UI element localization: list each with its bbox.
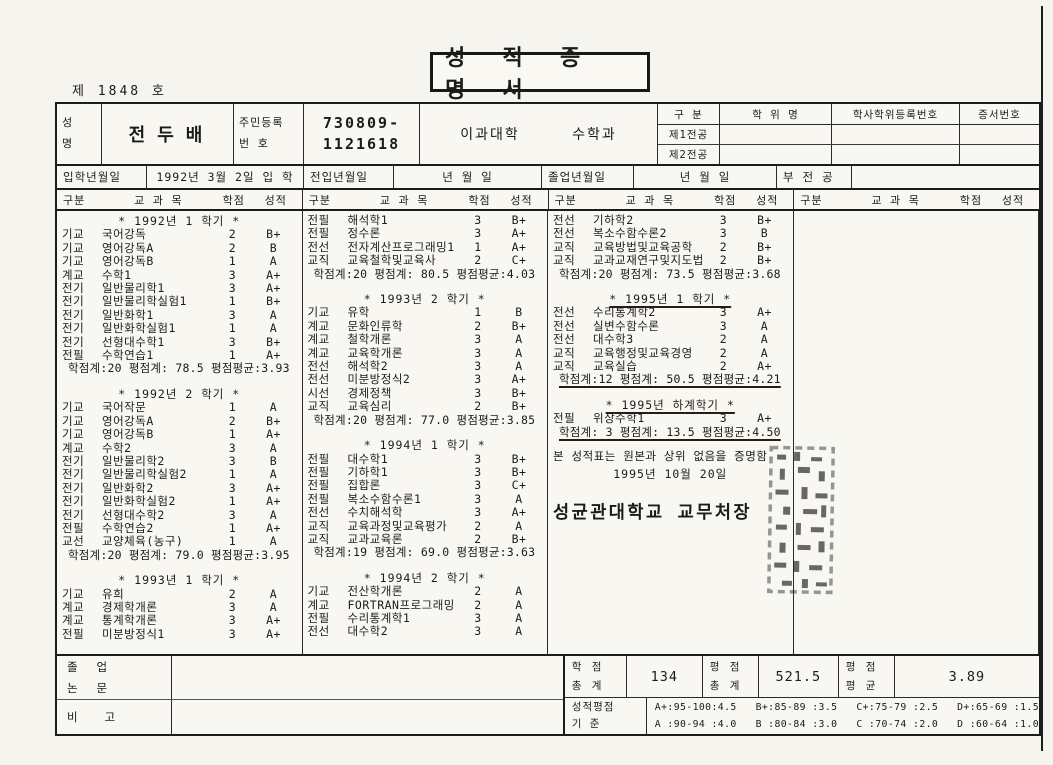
course-name: 대수학1 — [348, 453, 461, 466]
course-grade: A+ — [496, 506, 542, 519]
course-row: 전필해석학13B+ — [308, 214, 543, 227]
course-type: 계교 — [62, 442, 102, 455]
semester-summary: 학점계:20 평점계: 78.5 평점평균:3.93 — [62, 362, 297, 375]
thesis-label: 졸 업 논 문 — [57, 656, 172, 699]
course-row: 교직교육방법및교육공학2B+ — [553, 241, 788, 254]
course-type: 계교 — [62, 269, 102, 282]
course-grade: A — [742, 333, 788, 346]
semester-summary: 학점계:20 평점계: 79.0 평점평균:3.95 — [62, 549, 297, 562]
semester-title: * 1994년 1 학기 * — [308, 439, 543, 452]
course-type: 기교 — [62, 242, 102, 255]
course-row: 기교유희2A — [62, 588, 297, 601]
course-type: 전선 — [308, 506, 348, 519]
course-type: 전필 — [62, 349, 102, 362]
grade-scale-line1: A+:95-100:4.5 B+:85-89 :3.5 C+:75-79 :2.… — [655, 699, 1039, 716]
course-grade: A — [251, 322, 297, 335]
course-type: 전필 — [62, 522, 102, 535]
course-grade: B+ — [496, 466, 542, 479]
header-subject: 교 과 목 — [842, 192, 949, 208]
course-type: 전필 — [308, 466, 348, 479]
course-type: 전필 — [308, 453, 348, 466]
admission-date-value: 1992년 3월 2일 입 학 — [147, 166, 304, 188]
semester-summary: 학점계:20 평점계: 73.5 평점평균:3.68 — [553, 268, 788, 281]
course-name: 교과교육론 — [348, 533, 461, 546]
course-credit: 1 — [215, 401, 251, 414]
scanned-transcript-page: { "page": { "doc_number": "제 1848 호", "t… — [0, 0, 1053, 765]
semester-title-text: * 1993년 1 학기 * — [118, 573, 240, 587]
degree-table: 구 분 학 위 명 학사학위등록번호 증서번호 제1전공 제2전공 — [658, 104, 1039, 164]
course-header-group: 구분 교 과 목 학점 성적 — [794, 190, 1039, 209]
course-row: 전기일반물리학실험11B+ — [62, 295, 297, 308]
course-name: 정수론 — [348, 227, 461, 240]
transcript-column-3: 전선기하학23B+전선복소수함수론23B교직교육방법및교육공학2B+교직교과교재… — [548, 211, 794, 654]
course-name: 영어강독B — [102, 255, 215, 268]
course-credit: 3 — [215, 628, 251, 641]
course-type: 전기 — [62, 482, 102, 495]
semester-title: * 1995년 1 학기 * — [553, 293, 788, 306]
course-name: 교육실습 — [593, 360, 706, 373]
course-grade: B — [251, 242, 297, 255]
degree-col-regno: 학사학위등록번호 — [832, 104, 960, 124]
course-header-group: 구분 교 과 목 학점 성적 — [57, 190, 303, 209]
course-type: 기교 — [62, 588, 102, 601]
course-credit: 3 — [460, 360, 496, 373]
course-grade: A — [251, 535, 297, 548]
gpa-value: 3.89 — [895, 656, 1039, 697]
scan-paper-edge — [1041, 6, 1043, 751]
course-row: 전필대수학13B+ — [308, 453, 543, 466]
course-row: 전기일반물리학13A+ — [62, 282, 297, 295]
header-grade: 성적 — [993, 192, 1033, 208]
course-type: 전기 — [62, 509, 102, 522]
course-credit: 3 — [460, 493, 496, 506]
course-name: 경제학개론 — [102, 601, 215, 614]
course-row: 전기일반화학실험21A+ — [62, 495, 297, 508]
semester-title: * 1993년 2 학기 * — [308, 293, 543, 306]
footer-block: 졸 업 논 문 비 고 학 점 총 계 134 평 점 총 계 521.5 평 … — [57, 654, 1039, 734]
course-name: 일반물리학1 — [102, 282, 215, 295]
thesis-row: 졸 업 논 문 — [57, 656, 563, 700]
course-type: 전선 — [308, 373, 348, 386]
course-credit: 3 — [215, 614, 251, 627]
minor-value — [852, 166, 1039, 188]
course-type: 전필 — [308, 227, 348, 240]
course-name: 교육철학및교육사 — [348, 254, 461, 267]
course-grade: B — [496, 306, 542, 319]
graduation-date-value: 년 월 일 — [634, 166, 777, 188]
course-type: 교직 — [308, 520, 348, 533]
course-grade: A+ — [742, 360, 788, 373]
course-name: 수치해석학 — [348, 506, 461, 519]
course-row: 전선복소수함수론23B — [553, 227, 788, 240]
course-name: 일반화학실험1 — [102, 322, 215, 335]
course-name: 전자계산프로그래밍1 — [348, 241, 461, 254]
course-row: 계교경제학개론3A — [62, 601, 297, 614]
course-grade: A+ — [251, 269, 297, 282]
course-credit: 3 — [460, 214, 496, 227]
totals-row: 학 점 총 계 134 평 점 총 계 521.5 평 점 평 균 3.89 — [565, 656, 1039, 698]
course-grade: A+ — [742, 306, 788, 319]
student-name: 전두배 — [102, 104, 234, 164]
course-type: 계교 — [62, 601, 102, 614]
dates-row: 입학년월일 1992년 3월 2일 입 학 전입년월일 년 월 일 졸업년월일 … — [57, 166, 1039, 190]
course-row: 전선미분방정식23A+ — [308, 373, 543, 386]
transcript-column-1: * 1992년 1 학기 *기교국어강독2B+기교영어강독A2B기교영어강독B1… — [57, 211, 303, 654]
course-row: 전선해석학23A — [308, 360, 543, 373]
course-credit: 2 — [215, 588, 251, 601]
course-row: 계교수학13A+ — [62, 269, 297, 282]
total-credits-label: 학 점 총 계 — [565, 656, 627, 697]
course-row: 기교국어작문1A — [62, 401, 297, 414]
course-grade: B+ — [496, 533, 542, 546]
course-type: 기교 — [62, 228, 102, 241]
remarks-row: 비 고 — [57, 700, 563, 734]
course-name: 교양체육(농구) — [102, 535, 215, 548]
course-grade: A — [496, 360, 542, 373]
course-name: 위상수학1 — [593, 412, 706, 425]
course-credit: 3 — [215, 336, 251, 349]
admission-date-label: 입학년월일 — [57, 166, 147, 188]
transcript-body: * 1992년 1 학기 *기교국어강독2B+기교영어강독A2B기교영어강독B1… — [57, 211, 1039, 654]
course-type: 교직 — [308, 254, 348, 267]
grade-scale-line2: A :90-94 :4.0 B :80-84 :3.0 C :70-74 :2.… — [655, 716, 1039, 733]
course-name: 교육방법및교육공학 — [593, 241, 706, 254]
semester-title: * 1993년 1 학기 * — [62, 574, 297, 587]
course-type: 교직 — [308, 533, 348, 546]
course-name: 국어작문 — [102, 401, 215, 414]
header-subject: 교 과 목 — [105, 192, 212, 208]
course-name: 국어강독 — [102, 228, 215, 241]
thesis-value — [172, 656, 563, 699]
official-seal-stamp — [762, 442, 843, 599]
course-grade: B+ — [496, 214, 542, 227]
degree-table-header: 구 분 학 위 명 학사학위등록번호 증서번호 — [658, 104, 1039, 125]
course-name: 유학 — [348, 306, 461, 319]
header-gubun: 구분 — [309, 192, 351, 208]
course-type: 전기 — [62, 495, 102, 508]
course-grade: A — [496, 585, 542, 598]
grade-scale-values: A+:95-100:4.5 B+:85-89 :3.5 C+:75-79 :2.… — [647, 698, 1039, 734]
course-credit: 3 — [215, 309, 251, 322]
department-name: 수학과 — [572, 124, 617, 144]
course-credit: 3 — [460, 373, 496, 386]
course-name: 수학연습2 — [102, 522, 215, 535]
transfer-date-value: 년 월 일 — [394, 166, 542, 188]
course-row: 기교유학1B — [308, 306, 543, 319]
grade-scale-row: 성적평점 기 준 A+:95-100:4.5 B+:85-89 :3.5 C+:… — [565, 698, 1039, 734]
course-grade: A+ — [251, 522, 297, 535]
transfer-date-label: 전입년월일 — [304, 166, 394, 188]
total-points-value: 521.5 — [759, 656, 839, 697]
course-credit: 3 — [460, 479, 496, 492]
minor-label: 부 전 공 — [777, 166, 852, 188]
course-type: 기교 — [308, 306, 348, 319]
course-type: 교직 — [553, 254, 593, 267]
resident-id-line1: 730809- — [323, 113, 400, 134]
course-name: 기하학1 — [348, 466, 461, 479]
course-credit: 3 — [706, 227, 742, 240]
course-type: 기교 — [62, 428, 102, 441]
course-row: 교직교육행정및교육경영2A — [553, 347, 788, 360]
course-name: 수학2 — [102, 442, 215, 455]
header-grade: 성적 — [747, 192, 787, 208]
course-name: 유희 — [102, 588, 215, 601]
course-name: 영어강독B — [102, 428, 215, 441]
course-grade: C+ — [496, 479, 542, 492]
graduation-date-label: 졸업년월일 — [542, 166, 634, 188]
course-row: 전선실변수함수론3A — [553, 320, 788, 333]
course-grade: C+ — [496, 254, 542, 267]
certificate-statement: 본 성적표는 원본과 상위 없음을 증명함 — [553, 449, 788, 464]
semester-title: * 1992년 1 학기 * — [62, 215, 297, 228]
semester-title-text: * 1994년 2 학기 * — [364, 571, 486, 585]
course-grade: A+ — [251, 282, 297, 295]
course-grade: B+ — [251, 295, 297, 308]
course-credit: 2 — [460, 520, 496, 533]
course-row: 전기선형대수학23A — [62, 509, 297, 522]
course-grade: A — [251, 468, 297, 481]
course-name: 일반물리학2 — [102, 455, 215, 468]
course-name: 복소수함수론2 — [593, 227, 706, 240]
course-grade: A+ — [251, 482, 297, 495]
course-row: 전선대수학23A — [308, 625, 543, 638]
course-type: 계교 — [308, 333, 348, 346]
course-row: 교직교육과정및교육평가2A — [308, 520, 543, 533]
header-credit: 학점 — [703, 192, 747, 208]
course-type: 전기 — [62, 468, 102, 481]
course-name: 교육행정및교육경영 — [593, 347, 706, 360]
course-credit: 2 — [460, 533, 496, 546]
semester-title-text: * 1992년 1 학기 * — [118, 214, 240, 228]
course-type: 전필 — [308, 493, 348, 506]
course-grade: A — [742, 347, 788, 360]
footer-left: 졸 업 논 문 비 고 — [57, 656, 563, 734]
course-credit: 3 — [706, 214, 742, 227]
major2-degree-name — [720, 145, 832, 164]
semester-title-text: * 1994년 1 학기 * — [364, 438, 486, 452]
semester-title: * 1995년 하계학기 * — [553, 399, 788, 412]
course-row: 교선교양체육(농구)1A — [62, 535, 297, 548]
course-grade: B+ — [496, 400, 542, 413]
course-name: 대수학2 — [348, 625, 461, 638]
course-type: 전기 — [62, 336, 102, 349]
course-type: 계교 — [308, 320, 348, 333]
course-credit: 1 — [215, 295, 251, 308]
header-credit: 학점 — [949, 192, 993, 208]
course-type: 전필 — [308, 479, 348, 492]
course-grade: B+ — [496, 320, 542, 333]
course-type: 전선 — [553, 320, 593, 333]
course-row: 시선경제정책3B+ — [308, 387, 543, 400]
course-credit: 3 — [215, 482, 251, 495]
college-department: 이과대학 수학과 — [420, 104, 658, 164]
course-grade: B — [742, 227, 788, 240]
course-credit: 1 — [215, 255, 251, 268]
course-name: 복소수함수론1 — [348, 493, 461, 506]
course-credit: 1 — [460, 306, 496, 319]
course-row: 전기일반화학13A — [62, 309, 297, 322]
course-credit: 1 — [460, 241, 496, 254]
course-grade: A+ — [496, 373, 542, 386]
course-type: 전기 — [62, 282, 102, 295]
course-credit: 1 — [215, 468, 251, 481]
course-credit: 3 — [706, 306, 742, 319]
course-grade: B+ — [742, 254, 788, 267]
course-name: 전산학개론 — [348, 585, 461, 598]
course-grade: A — [251, 442, 297, 455]
semester-title: * 1994년 2 학기 * — [308, 572, 543, 585]
course-header-group: 구분 교 과 목 학점 성적 — [303, 190, 549, 209]
header-credit: 학점 — [212, 192, 256, 208]
course-name: 집합론 — [348, 479, 461, 492]
course-name: 일반물리학실험1 — [102, 295, 215, 308]
course-row: 전필수학연습21A+ — [62, 522, 297, 535]
course-credit: 3 — [460, 612, 496, 625]
course-row: 교직교과교재연구및지도법2B+ — [553, 254, 788, 267]
course-row: 교직교육실습2A+ — [553, 360, 788, 373]
course-type: 전기 — [62, 295, 102, 308]
course-row: 교직교과교육론2B+ — [308, 533, 543, 546]
course-grade: A — [251, 401, 297, 414]
course-grade: B — [251, 455, 297, 468]
course-name: 기하학2 — [593, 214, 706, 227]
course-credit: 2 — [706, 241, 742, 254]
course-name: 실변수함수론 — [593, 320, 706, 333]
course-grade: A+ — [742, 412, 788, 425]
degree-row-major2: 제2전공 — [658, 144, 1039, 164]
course-grade: A — [251, 601, 297, 614]
course-header-group: 구분 교 과 목 학점 성적 — [549, 190, 795, 209]
course-type: 전선 — [308, 241, 348, 254]
footer-right: 학 점 총 계 134 평 점 총 계 521.5 평 점 평 균 3.89 성… — [563, 656, 1039, 734]
course-credit: 3 — [215, 601, 251, 614]
course-credit: 2 — [215, 242, 251, 255]
course-grade: A — [251, 255, 297, 268]
course-grade: A — [251, 509, 297, 522]
course-grade: B+ — [742, 241, 788, 254]
semester-summary: 학점계:20 평점계: 80.5 평점평균:4.03 — [308, 268, 543, 281]
course-grade: A — [496, 625, 542, 638]
course-grade: A+ — [251, 428, 297, 441]
course-credit: 2 — [706, 347, 742, 360]
course-grade: B+ — [251, 336, 297, 349]
major2-cert-no — [960, 145, 1039, 164]
gpa-label: 평 점 평 균 — [839, 656, 895, 697]
course-type: 전필 — [308, 214, 348, 227]
course-grade: B+ — [496, 453, 542, 466]
course-header-row: 구분 교 과 목 학점 성적 구분 교 과 목 학점 성적 구분 교 과 목 학… — [57, 190, 1039, 211]
course-type: 교선 — [62, 535, 102, 548]
course-credit: 3 — [215, 282, 251, 295]
semester-summary: 학점계:12 평점계: 50.5 평점평균:4.21 — [553, 373, 788, 386]
course-row: 전필집합론3C+ — [308, 479, 543, 492]
course-credit: 3 — [215, 509, 251, 522]
course-type: 전선 — [553, 333, 593, 346]
course-type: 시선 — [308, 387, 348, 400]
course-grade: A — [742, 320, 788, 333]
major2-label: 제2전공 — [658, 145, 720, 164]
course-credit: 2 — [215, 415, 251, 428]
semester-summary: 학점계: 3 평점계: 13.5 평점평균:4.50 — [553, 426, 788, 439]
grade-scale-label: 성적평점 기 준 — [565, 698, 647, 734]
course-name: 수리통계학2 — [593, 306, 706, 319]
course-name: 교육학개론 — [348, 347, 461, 360]
course-name: 통계학개론 — [102, 614, 215, 627]
course-type: 교직 — [553, 241, 593, 254]
course-name: 문화인류학 — [348, 320, 461, 333]
course-type: 교직 — [553, 360, 593, 373]
course-type: 전필 — [308, 612, 348, 625]
course-name: 영어강독A — [102, 242, 215, 255]
resident-id-line2: 1121618 — [323, 134, 400, 155]
degree-row-major1: 제1전공 — [658, 125, 1039, 144]
total-credits-value: 134 — [627, 656, 703, 697]
course-grade: A+ — [251, 628, 297, 641]
course-grade: B+ — [496, 387, 542, 400]
course-type: 교직 — [308, 400, 348, 413]
course-name: 수리통계학1 — [348, 612, 461, 625]
course-type: 전선 — [553, 306, 593, 319]
course-type: 전선 — [553, 214, 593, 227]
degree-col-name: 학 위 명 — [720, 104, 832, 124]
course-row: 전선수리통계학23A+ — [553, 306, 788, 319]
course-name: 일반화학실험2 — [102, 495, 215, 508]
course-credit: 1 — [215, 535, 251, 548]
course-grade: B+ — [742, 214, 788, 227]
course-name: 교육심리 — [348, 400, 461, 413]
course-row: 전기일반물리학실험21A — [62, 468, 297, 481]
course-type: 전선 — [308, 625, 348, 638]
course-credit: 3 — [706, 412, 742, 425]
course-name: 해석학2 — [348, 360, 461, 373]
course-type: 전필 — [62, 628, 102, 641]
course-row: 계교교육학개론3A — [308, 347, 543, 360]
course-row: 전선전자계산프로그래밍11A+ — [308, 241, 543, 254]
course-row: 전기일반화학실험11A — [62, 322, 297, 335]
course-type: 전필 — [553, 412, 593, 425]
header-gubun: 구분 — [555, 192, 597, 208]
course-credit: 2 — [460, 320, 496, 333]
course-credit: 1 — [215, 322, 251, 335]
course-row: 기교국어강독2B+ — [62, 228, 297, 241]
major1-degree-name — [720, 125, 832, 144]
course-grade: A — [496, 599, 542, 612]
header-credit: 학점 — [458, 192, 502, 208]
course-row: 전필정수론3A+ — [308, 227, 543, 240]
course-type: 전기 — [62, 309, 102, 322]
course-row: 전필수학연습11A+ — [62, 349, 297, 362]
course-type: 교직 — [553, 347, 593, 360]
transcript-column-2: 전필해석학13B+전필정수론3A+전선전자계산프로그래밍11A+교직교육철학및교… — [303, 211, 549, 654]
course-type: 전선 — [553, 227, 593, 240]
course-row: 전필수리통계학13A — [308, 612, 543, 625]
course-grade: A — [496, 333, 542, 346]
course-name: 철학개론 — [348, 333, 461, 346]
course-type: 계교 — [308, 599, 348, 612]
course-credit: 3 — [215, 442, 251, 455]
course-row: 전선수치해석학3A+ — [308, 506, 543, 519]
semester-summary: 학점계:20 평점계: 77.0 평점평균:3.85 — [308, 414, 543, 427]
header-gubun: 구분 — [800, 192, 842, 208]
course-grade: B+ — [251, 415, 297, 428]
header-grade: 성적 — [502, 192, 542, 208]
course-name: 일반화학1 — [102, 309, 215, 322]
header-subject: 교 과 목 — [597, 192, 704, 208]
course-grade: A — [251, 588, 297, 601]
name-label: 성 명 — [57, 104, 102, 164]
course-grade: B+ — [251, 228, 297, 241]
course-credit: 2 — [460, 599, 496, 612]
